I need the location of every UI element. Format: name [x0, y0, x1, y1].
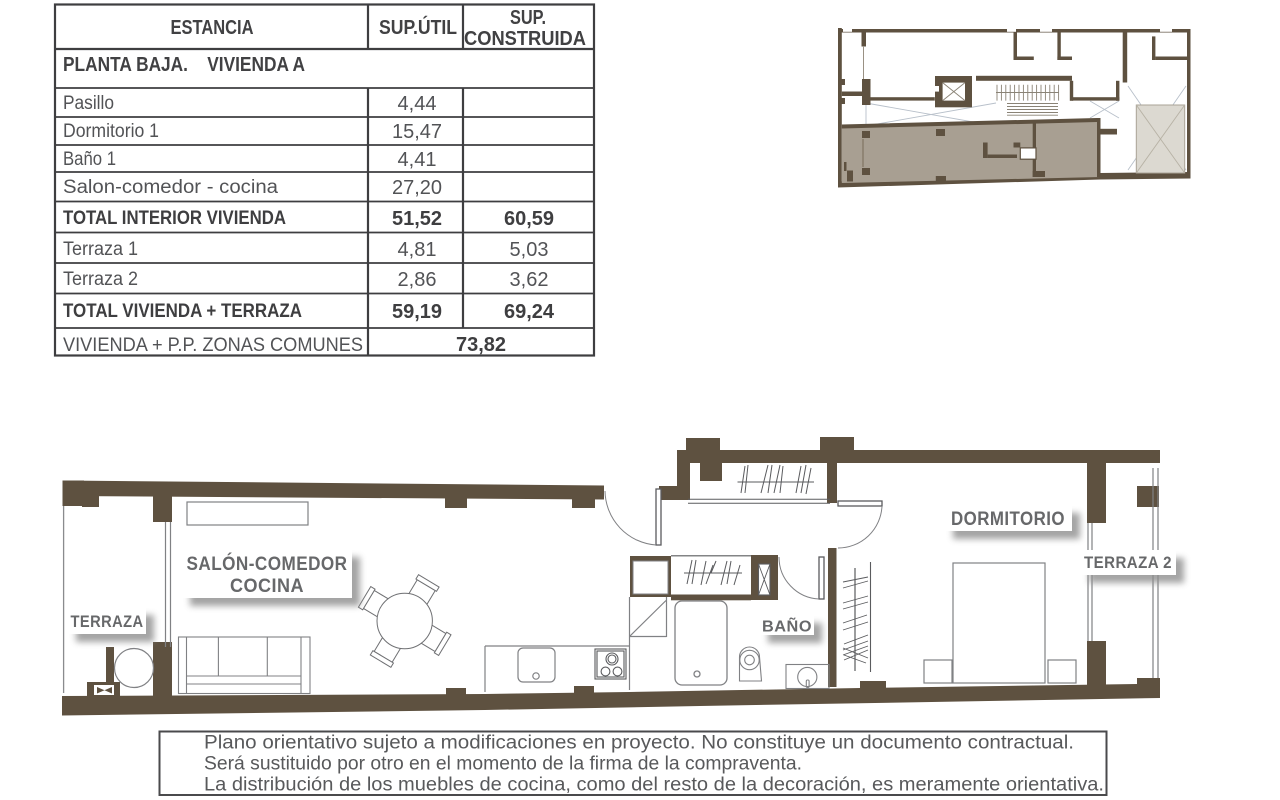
svg-text:Plano orientativo sujeto a mod: Plano orientativo sujeto a modificacione… — [204, 733, 1074, 754]
svg-text:ESTANCIA: ESTANCIA — [171, 17, 254, 39]
svg-text:60,59: 60,59 — [504, 208, 554, 230]
svg-text:Baño 1: Baño 1 — [63, 149, 116, 170]
svg-text:TERRAZA: TERRAZA — [71, 612, 144, 631]
svg-text:TOTAL INTERIOR VIVIENDA: TOTAL INTERIOR VIVIENDA — [63, 208, 286, 229]
svg-text:69,24: 69,24 — [504, 301, 555, 323]
svg-text:SUP.: SUP. — [510, 7, 546, 29]
svg-text:TOTAL VIVIENDA + TERRAZA: TOTAL VIVIENDA + TERRAZA — [63, 301, 302, 322]
svg-text:Dormitorio 1: Dormitorio 1 — [63, 121, 159, 142]
svg-text:Terraza 1: Terraza 1 — [63, 239, 138, 260]
svg-text:BAÑO: BAÑO — [762, 616, 812, 636]
svg-text:2,86: 2,86 — [398, 269, 437, 291]
svg-text:La distribución de los muebles: La distribución de los muebles de cocina… — [204, 775, 1104, 796]
svg-text:27,20: 27,20 — [392, 177, 442, 199]
svg-text:CONSTRUIDA: CONSTRUIDA — [464, 28, 586, 50]
svg-text:SUP.ÚTIL: SUP.ÚTIL — [379, 15, 457, 39]
svg-text:Terraza 2: Terraza 2 — [63, 269, 138, 290]
svg-text:5,03: 5,03 — [510, 239, 549, 261]
svg-text:SALÓN-COMEDOR: SALÓN-COMEDOR — [187, 553, 348, 575]
svg-text:COCINA: COCINA — [230, 576, 304, 597]
svg-text:TERRAZA 2: TERRAZA 2 — [1084, 553, 1172, 572]
svg-text:3,62: 3,62 — [510, 269, 549, 291]
svg-text:73,82: 73,82 — [456, 334, 506, 356]
svg-text:4,81: 4,81 — [398, 239, 437, 261]
svg-text:Será sustituido por otro en el: Será sustituido por otro en el momento d… — [204, 754, 802, 775]
svg-text:15,47: 15,47 — [392, 121, 442, 143]
svg-text:DORMITORIO: DORMITORIO — [951, 509, 1065, 530]
svg-text:VIVIENDA + P.P. ZONAS COMUNES: VIVIENDA + P.P. ZONAS COMUNES — [63, 335, 363, 356]
svg-text:Pasillo: Pasillo — [63, 93, 114, 114]
svg-text:51,52: 51,52 — [392, 208, 442, 230]
svg-text:PLANTA BAJA. VIVIENDA A: PLANTA BAJA. VIVIENDA A — [63, 54, 305, 76]
svg-text:4,44: 4,44 — [398, 93, 437, 115]
svg-text:59,19: 59,19 — [392, 301, 442, 323]
svg-text:4,41: 4,41 — [398, 149, 437, 171]
svg-text:Salon-comedor - cocina: Salon-comedor - cocina — [63, 177, 278, 198]
